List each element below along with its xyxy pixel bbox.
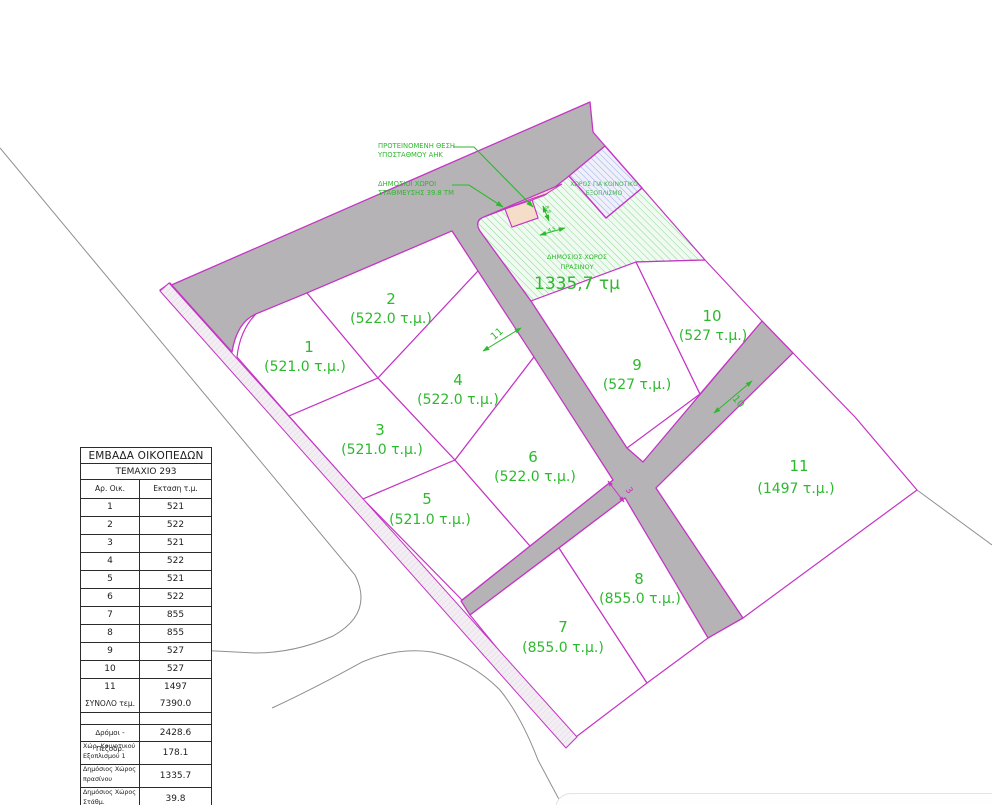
plot-area-cell: 521	[139, 571, 211, 588]
col-header-area: Εκταση τ.μ.	[139, 480, 211, 498]
table-subtitle: ΤΕΜΑΧΙΟ 293	[81, 464, 211, 480]
plot-number-cell: 6	[81, 589, 139, 606]
plot-area-cell: 527	[139, 661, 211, 678]
plot-number-cell: 9	[81, 643, 139, 660]
extra-label-cell: Δημόσιος Χώρος πρασίνου	[81, 765, 139, 787]
plot-8-area: (855.0 τ.μ.)	[599, 591, 681, 607]
parking-label-line1: ΔΗΜΟΣΙΟΙ ΧΩΡΟΙ	[378, 180, 436, 188]
table-row: 3521	[81, 535, 211, 553]
table-row: 8855	[81, 625, 211, 643]
plot-number-cell: 7	[81, 607, 139, 624]
table-row: 4522	[81, 553, 211, 571]
plot-1-area: (521.0 τ.μ.)	[264, 359, 346, 375]
rounded-panel-artifact	[555, 793, 992, 805]
extra-value-cell: 39.8	[139, 788, 211, 805]
table-row: 6522	[81, 589, 211, 607]
plot-area-cell: 522	[139, 517, 211, 534]
plot-7-number: 7	[558, 618, 568, 636]
col-header-plot-number: Αρ. Οικ.	[81, 480, 139, 498]
plot-9-number: 9	[632, 356, 642, 374]
plot-number-cell: 3	[81, 535, 139, 552]
plot-3-area: (521.0 τ.μ.)	[341, 442, 423, 458]
plot-area-cell: 521	[139, 535, 211, 552]
total-label: ΣΥΝΟΛΟ τεμ.	[81, 696, 139, 712]
extra-label-cell: Δρόμοι - Πεζοδρ.	[81, 725, 139, 741]
plot-number-cell: 1	[81, 499, 139, 516]
table-extra-row: Δημόσιος Χώρος πρασίνου1335.7	[81, 765, 211, 788]
plot-8-number: 8	[634, 570, 644, 588]
plot-6-area: (522.0 τ.μ.)	[494, 469, 576, 485]
plot-area-cell: 521	[139, 499, 211, 516]
plot-areas-table: ΕΜΒΑΔΑ ΟΙΚΟΠΕΔΩΝ ΤΕΜΑΧΙΟ 293 Αρ. Οικ. Εκ…	[80, 447, 212, 805]
plot-11-number: 11	[789, 457, 808, 475]
plot-area-cell: 527	[139, 643, 211, 660]
plot-number-cell: 2	[81, 517, 139, 534]
plot-4-number: 4	[453, 371, 463, 389]
table-extra-row: Χώρ. Κοινοτικού Εξοπλισμού 1178.1	[81, 742, 211, 765]
table-extra-row: Δημόσιος Χώρος Στάθμ.39.8	[81, 788, 211, 805]
table-row: 5521	[81, 571, 211, 589]
table-total-row: ΣΥΝΟΛΟ τεμ. 7390.0	[81, 696, 211, 713]
plot-7-area: (855.0 τ.μ.)	[522, 640, 604, 656]
plot-1-number: 1	[304, 338, 314, 356]
substation-label-line1: ΠΡΟΤΕΙΝΟΜΕΝΗ ΘΕΣΗ	[378, 142, 455, 150]
table-row: 7855	[81, 607, 211, 625]
plot-area-cell: 522	[139, 553, 211, 570]
plot-number-cell: 5	[81, 571, 139, 588]
plot-3-number: 3	[375, 421, 385, 439]
extra-value-cell: 1335.7	[139, 765, 211, 787]
plot-6-number: 6	[528, 448, 538, 466]
extra-label-cell: Δημόσιος Χώρος Στάθμ.	[81, 788, 139, 805]
plot-number-cell: 11	[81, 679, 139, 696]
green-space-label-line1: ΔΗΜΟΣΙΟΣ ΧΩΡΟΣ	[547, 253, 607, 261]
table-extras: Δρόμοι - Πεζοδρ.2428.6Χώρ. Κοινοτικού Εξ…	[81, 725, 211, 805]
table-body: 1521252235214522552165227855885595271052…	[81, 499, 211, 696]
plot-5-area: (521.0 τ.μ.)	[389, 512, 471, 528]
plot-5-number: 5	[422, 490, 432, 508]
substation-label-line2: ΥΠΟΣΤΑΘΜΟΥ ΑΗΚ	[377, 151, 443, 159]
total-value: 7390.0	[139, 696, 211, 712]
parking-label-line2: ΣΤΑΘΜΕΥΣΗΣ 39.8 ΤΜ	[378, 189, 454, 197]
plot-area-cell: 855	[139, 625, 211, 642]
plot-area-cell: 522	[139, 589, 211, 606]
green-space-label-line2: ΠΡΑΣΙΝΟΥ	[560, 263, 593, 271]
plot-4-area: (522.0 τ.μ.)	[417, 392, 499, 408]
table-extra-row: Δρόμοι - Πεζοδρ.2428.6	[81, 725, 211, 742]
plot-2-number: 2	[386, 290, 396, 308]
table-spacer-row	[81, 713, 211, 725]
extra-value-cell: 178.1	[139, 742, 211, 764]
table-row: 10527	[81, 661, 211, 679]
plot-area-cell: 855	[139, 607, 211, 624]
extra-value-cell: 2428.6	[139, 725, 211, 741]
table-title: ΕΜΒΑΔΑ ΟΙΚΟΠΕΔΩΝ	[81, 448, 211, 464]
plot-9-area: (527 τ.μ.)	[603, 377, 671, 393]
table-row: 1521	[81, 499, 211, 517]
community-label-line2: ΕΞΟΠΛΙΣΜΟ	[586, 190, 623, 197]
plot-10-number: 10	[702, 307, 721, 325]
extra-label-cell: Χώρ. Κοινοτικού Εξοπλισμού 1	[81, 742, 139, 764]
table-row: 2522	[81, 517, 211, 535]
boundary-line-right	[917, 490, 992, 545]
community-label-line1: ΧΩΡΟΣ ΓΙΑ ΚΟΙΝΟΤΙΚΟ	[570, 181, 638, 188]
table-row: 9527	[81, 643, 211, 661]
plot-2-area: (522.0 τ.μ.)	[350, 311, 432, 327]
table-row: 111497	[81, 679, 211, 696]
table-header-row: Αρ. Οικ. Εκταση τ.μ.	[81, 480, 211, 499]
plot-number-cell: 8	[81, 625, 139, 642]
plot-11-area: (1497 τ.μ.)	[757, 481, 834, 497]
green-space-area-value: 1335,7 τμ	[534, 274, 620, 294]
cadastral-plan-canvas: 1 (521.0 τ.μ.) 2 (522.0 τ.μ.) 3 (521.0 τ…	[0, 0, 992, 805]
plot-area-cell: 1497	[139, 679, 211, 696]
plot-10-area: (527 τ.μ.)	[679, 328, 747, 344]
plot-number-cell: 4	[81, 553, 139, 570]
plot-number-cell: 10	[81, 661, 139, 678]
